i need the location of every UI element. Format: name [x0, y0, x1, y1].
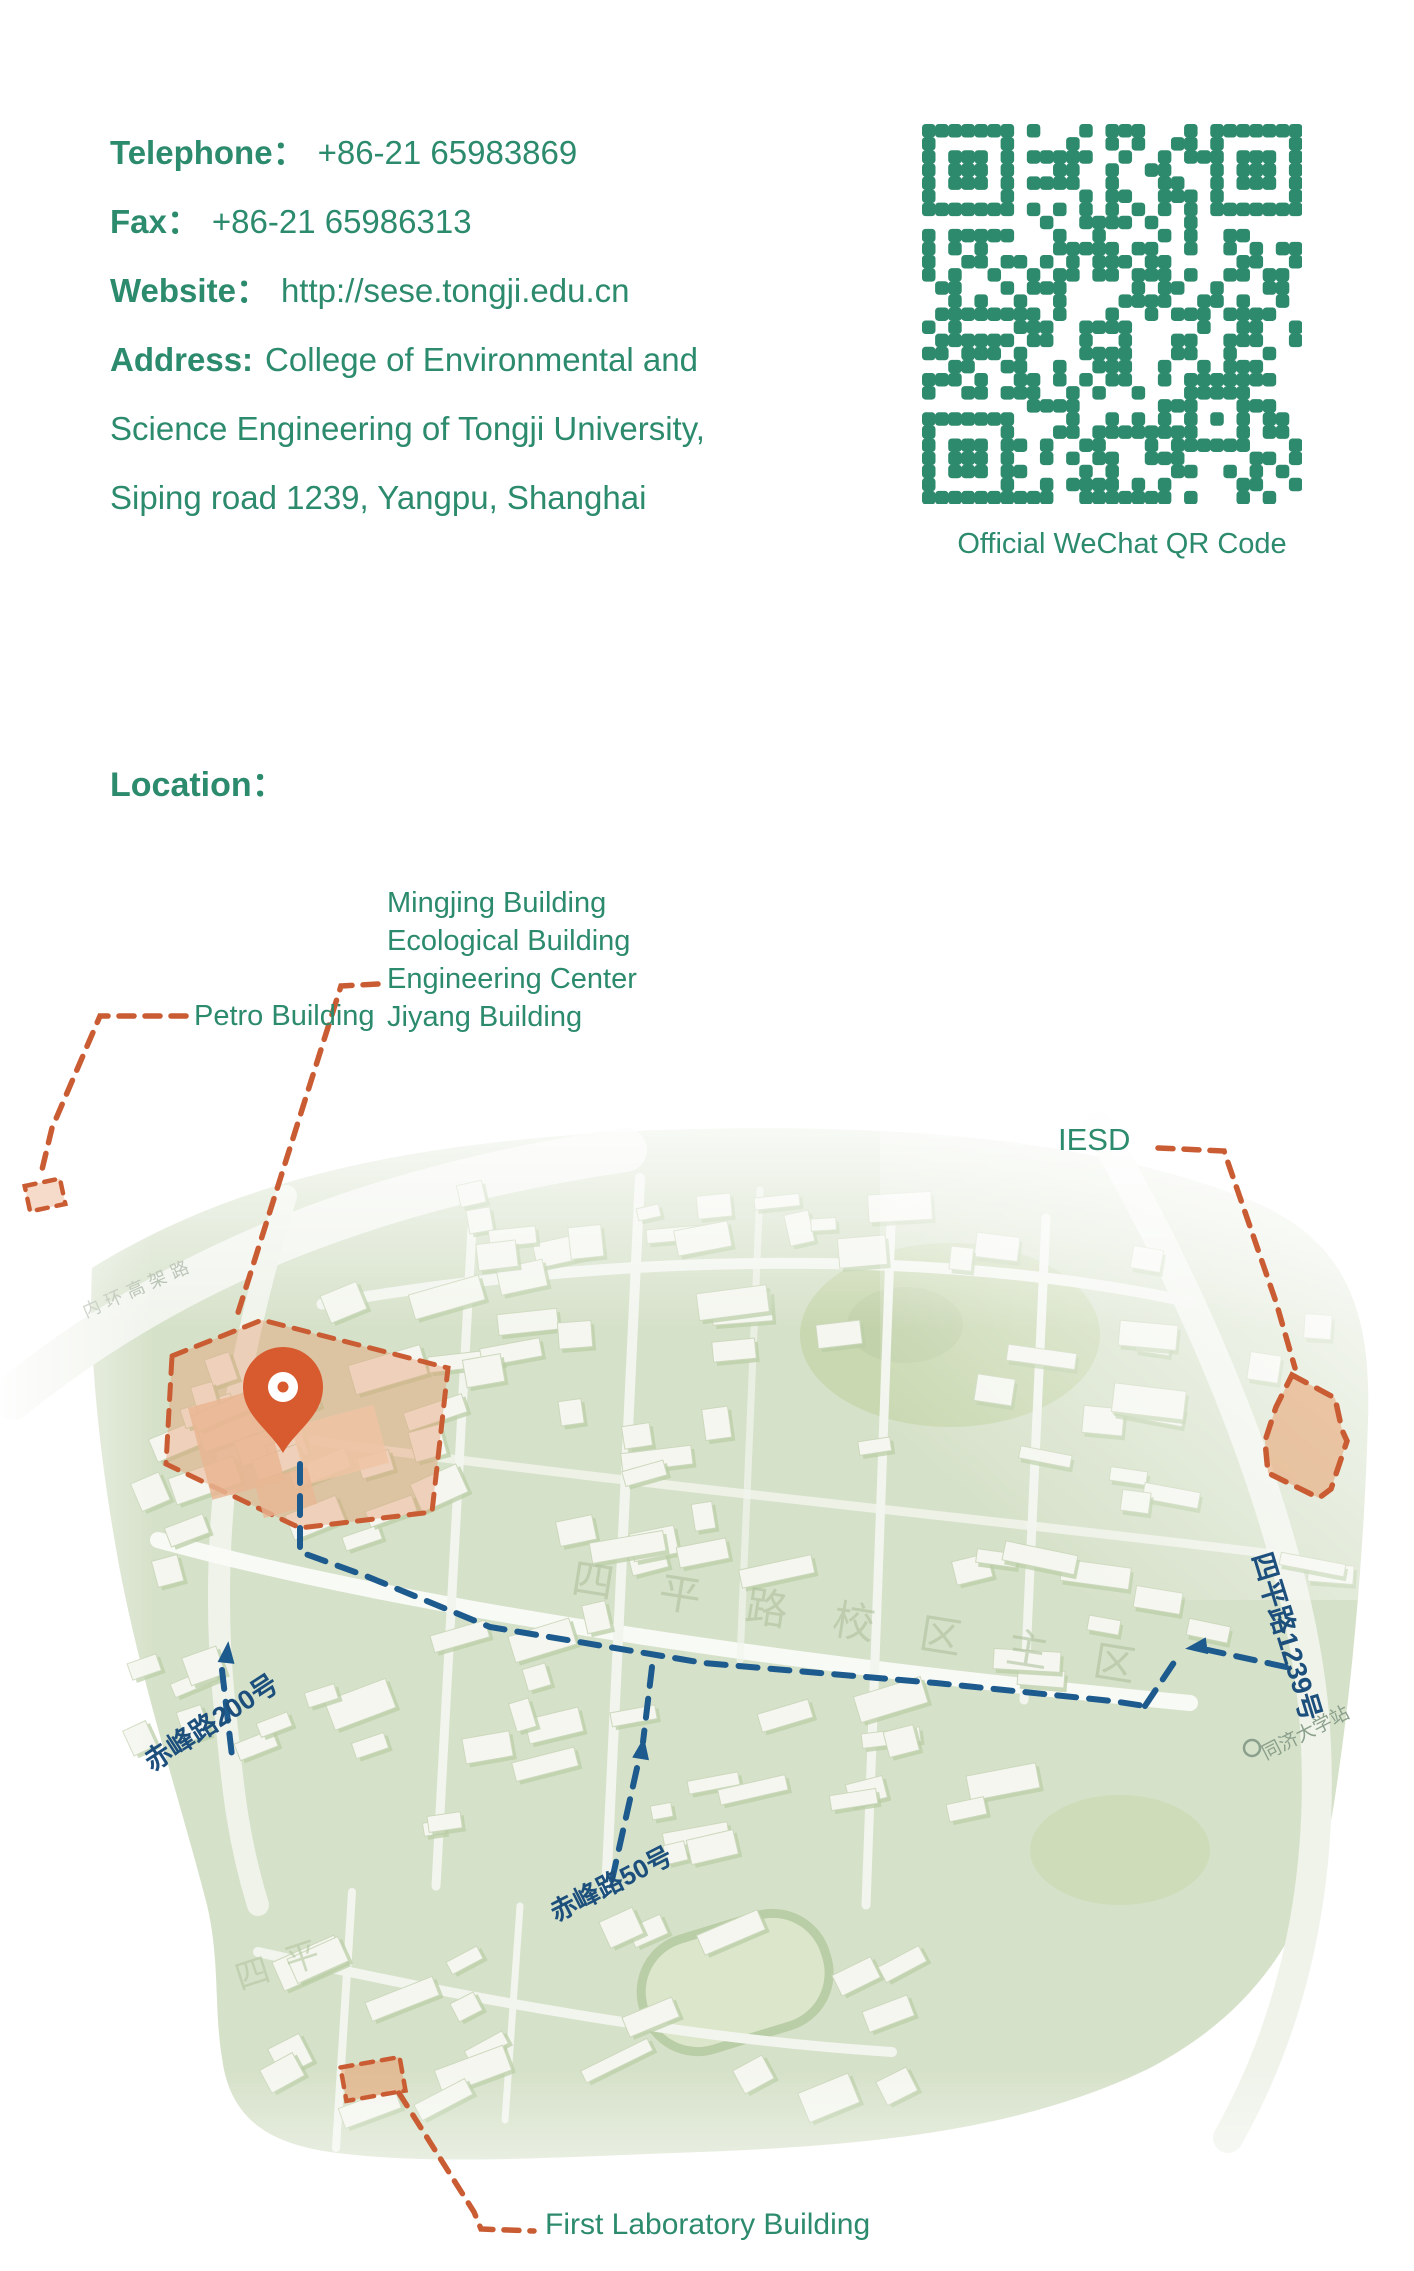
qr-module — [948, 203, 962, 217]
qr-module — [988, 412, 1002, 426]
qr-module — [1001, 203, 1015, 217]
qr-module — [961, 163, 975, 177]
qr-module — [961, 452, 975, 466]
qr-module — [961, 412, 975, 426]
qr-module — [948, 373, 962, 387]
qr-module — [1236, 425, 1250, 439]
qr-module — [1132, 203, 1146, 217]
qr-module — [1040, 150, 1054, 164]
qr-module — [1092, 360, 1106, 374]
qr-module — [1223, 307, 1237, 321]
qr-module — [1289, 255, 1302, 269]
qr-module — [974, 255, 988, 269]
qr-module — [1276, 294, 1290, 308]
qr-module — [1250, 465, 1264, 479]
qr-module — [1092, 268, 1106, 282]
qr-module — [1158, 399, 1172, 413]
qr-module — [1145, 307, 1159, 321]
qr-module — [1250, 176, 1264, 190]
qr-module — [1158, 203, 1172, 217]
qr-module — [1289, 190, 1302, 204]
qr-module — [1027, 150, 1041, 164]
qr-module — [1236, 163, 1250, 177]
qr-module — [948, 334, 962, 348]
qr-module — [974, 386, 988, 400]
qr-module — [974, 242, 988, 256]
qr-module — [1250, 334, 1264, 348]
qr-module — [948, 268, 962, 282]
qr-module — [1132, 268, 1146, 282]
qr-module — [1105, 203, 1119, 217]
qr-module — [961, 255, 975, 269]
qr-module — [1158, 425, 1172, 439]
qr-module — [1197, 360, 1211, 374]
qr-module — [1079, 373, 1093, 387]
qr-module — [1092, 216, 1106, 230]
qr-module — [961, 150, 975, 164]
qr-module — [1014, 347, 1028, 361]
qr-module — [1119, 334, 1133, 348]
first-lab-building-area — [341, 2057, 406, 2101]
map-building — [702, 1406, 732, 1441]
qr-module — [1210, 203, 1224, 217]
qr-module — [922, 203, 936, 217]
qr-module — [1014, 373, 1028, 387]
qr-module — [1236, 294, 1250, 308]
website-line: Website：http://sese.tongji.edu.cn — [110, 256, 705, 325]
qr-module — [1236, 203, 1250, 217]
qr-module — [1210, 438, 1224, 452]
brochure-page: 四平路校区主区 四平 内环高架路 — [0, 0, 1414, 2271]
qr-module — [1040, 478, 1054, 492]
address-value-1: College of Environmental and — [265, 341, 698, 378]
qr-module — [1040, 176, 1054, 190]
qr-module — [1132, 281, 1146, 295]
qr-module — [1236, 268, 1250, 282]
qr-module — [1027, 373, 1041, 387]
qr-module — [1040, 255, 1054, 269]
qr-module — [1210, 294, 1224, 308]
qr-module — [1223, 347, 1237, 361]
qr-module — [1276, 425, 1290, 439]
qr-module — [1014, 255, 1028, 269]
qr-module — [922, 190, 936, 204]
qr-module — [1014, 386, 1028, 400]
qr-module — [1119, 425, 1133, 439]
qr-module — [961, 203, 975, 217]
qr-module — [922, 373, 936, 387]
qr-module — [1184, 190, 1198, 204]
qr-module — [1289, 163, 1302, 177]
qr-module — [1079, 321, 1093, 335]
qr-module — [948, 163, 962, 177]
qr-module — [961, 360, 975, 374]
contact-block: Telephone：+86-21 65983869 Fax：+86-21 659… — [110, 118, 705, 532]
qr-module — [1066, 452, 1080, 466]
qr-module — [1158, 255, 1172, 269]
fax-value: +86-21 65986313 — [212, 203, 472, 240]
qr-module — [935, 281, 949, 295]
address-label: Address: — [110, 341, 253, 378]
qr-module — [1105, 425, 1119, 439]
qr-module — [1276, 281, 1290, 295]
qr-module — [1145, 452, 1159, 466]
qr-module — [1289, 478, 1302, 492]
qr-module — [1092, 321, 1106, 335]
qr-module — [1197, 321, 1211, 335]
qr-module — [1053, 425, 1067, 439]
qr-module — [1119, 150, 1133, 164]
qr-module — [1223, 268, 1237, 282]
qr-module — [1171, 137, 1185, 151]
qr-module — [961, 229, 975, 243]
qr-module — [1276, 412, 1290, 426]
qr-module — [1236, 491, 1250, 504]
qr-module — [1145, 163, 1159, 177]
qr-module — [1250, 321, 1264, 335]
qr-module — [1171, 281, 1185, 295]
qr-module — [1105, 124, 1119, 138]
qr-module — [1250, 163, 1264, 177]
qr-module — [1145, 294, 1159, 308]
location-heading: Location： — [110, 757, 286, 806]
qr-module — [1223, 373, 1237, 387]
qr-module — [1092, 438, 1106, 452]
qr-module — [1053, 307, 1067, 321]
qr-module — [935, 307, 949, 321]
qr-module — [1184, 242, 1198, 256]
qr-module — [988, 491, 1002, 504]
qr-module — [1171, 190, 1185, 204]
qr-module — [1040, 491, 1054, 504]
qr-module — [1236, 176, 1250, 190]
qr-module — [1263, 399, 1277, 413]
qr-module — [1236, 321, 1250, 335]
qr-module — [1184, 465, 1198, 479]
qr-module — [948, 294, 962, 308]
qr-module — [961, 465, 975, 479]
qr-module — [1132, 124, 1146, 138]
qr-module — [1105, 176, 1119, 190]
qr-module — [922, 465, 936, 479]
qr-module — [1223, 229, 1237, 243]
qr-module — [1263, 163, 1277, 177]
qr-module — [948, 438, 962, 452]
qr-module — [1263, 412, 1277, 426]
qr-module — [1105, 242, 1119, 256]
qr-module — [922, 242, 936, 256]
map-label-jiyang: Jiyang Building — [387, 998, 637, 1036]
qr-module — [1119, 373, 1133, 387]
qr-module — [1145, 438, 1159, 452]
qr-module — [1066, 412, 1080, 426]
qr-module — [1079, 203, 1093, 217]
qr-module — [1184, 307, 1198, 321]
qr-module — [1001, 386, 1015, 400]
qr-module — [1289, 242, 1302, 256]
map-label-iesd: IESD — [1058, 1122, 1130, 1158]
qr-module — [922, 347, 936, 361]
qr-module — [988, 268, 1002, 282]
fax-line: Fax：+86-21 65986313 — [110, 187, 705, 256]
qr-module — [974, 347, 988, 361]
qr-module — [1210, 124, 1224, 138]
qr-module — [1250, 242, 1264, 256]
qr-module — [1263, 491, 1277, 504]
qr-module — [1105, 347, 1119, 361]
qr-module — [1119, 216, 1133, 230]
qr-module — [1145, 268, 1159, 282]
qr-module — [1079, 478, 1093, 492]
qr-module — [1197, 150, 1211, 164]
qr-module — [1171, 347, 1185, 361]
qr-module — [1092, 347, 1106, 361]
qr-module — [1171, 438, 1185, 452]
qr-module — [1184, 334, 1198, 348]
qr-module — [922, 150, 936, 164]
qr-module — [1001, 465, 1015, 479]
qr-module — [1132, 294, 1146, 308]
qr-module — [1158, 478, 1172, 492]
qr-module — [1119, 294, 1133, 308]
qr-module — [1001, 478, 1015, 492]
qr-module — [1119, 360, 1133, 374]
qr-module — [948, 124, 962, 138]
qr-module — [948, 452, 962, 466]
qr-module — [1184, 347, 1198, 361]
qr-module — [1105, 137, 1119, 151]
qr-module — [1223, 124, 1237, 138]
qr-module — [1027, 268, 1041, 282]
qr-module — [961, 124, 975, 138]
qr-module — [1210, 137, 1224, 151]
qr-module — [1263, 373, 1277, 387]
qr-module — [1289, 321, 1302, 335]
qr-module — [935, 203, 949, 217]
petro-leader-box — [25, 1179, 66, 1212]
qr-module — [1263, 452, 1277, 466]
qr-module — [961, 347, 975, 361]
qr-module — [1250, 124, 1264, 138]
qr-module — [1263, 176, 1277, 190]
qr-module — [1092, 425, 1106, 439]
qr-module — [974, 452, 988, 466]
qr-module — [1001, 425, 1015, 439]
qr-module — [1210, 190, 1224, 204]
qr-module — [922, 268, 936, 282]
qr-module — [1184, 268, 1198, 282]
qr-module — [1236, 360, 1250, 374]
qr-module — [1105, 255, 1119, 269]
qr-module — [1158, 294, 1172, 308]
qr-module — [1158, 268, 1172, 282]
qr-module — [1092, 229, 1106, 243]
qr-module — [1171, 307, 1185, 321]
qr-module — [922, 491, 936, 504]
qr-module — [974, 334, 988, 348]
qr-module — [948, 465, 962, 479]
qr-module — [1119, 190, 1133, 204]
qr-module — [1250, 478, 1264, 492]
qr-module — [1066, 255, 1080, 269]
qr-module — [948, 321, 962, 335]
qr-module — [1053, 268, 1067, 282]
qr-module — [974, 373, 988, 387]
qr-module — [935, 491, 949, 504]
qr-module — [974, 124, 988, 138]
qr-module — [1223, 242, 1237, 256]
qr-module — [974, 229, 988, 243]
qr-module — [1184, 386, 1198, 400]
qr-module — [988, 347, 1002, 361]
qr-module — [948, 412, 962, 426]
qr-module — [1263, 425, 1277, 439]
qr-module — [922, 321, 936, 335]
qr-module — [1263, 124, 1277, 138]
qr-module — [1276, 242, 1290, 256]
qr-module — [1250, 399, 1264, 413]
qr-module — [1066, 399, 1080, 413]
qr-module — [1289, 452, 1302, 466]
qr-module — [1105, 268, 1119, 282]
qr-module — [1132, 425, 1146, 439]
qr-module — [974, 203, 988, 217]
map-label-first-laboratory: First Laboratory Building — [545, 2208, 870, 2242]
qr-module — [1119, 347, 1133, 361]
qr-module — [948, 307, 962, 321]
qr-module — [1197, 373, 1211, 387]
qr-module — [1014, 321, 1028, 335]
qr-module — [974, 294, 988, 308]
qr-module — [1263, 307, 1277, 321]
qr-module — [1184, 399, 1198, 413]
qr-module — [961, 334, 975, 348]
qr-module — [1132, 137, 1146, 151]
qr-module — [974, 412, 988, 426]
qr-module — [1263, 268, 1277, 282]
qr-module — [1001, 163, 1015, 177]
qr-module — [1040, 216, 1054, 230]
map-building — [691, 1501, 716, 1531]
qr-module — [948, 281, 962, 295]
qr-module — [935, 334, 949, 348]
map-base: 四平路校区主区 四平 内环高架路 — [0, 1080, 1414, 2271]
qr-module — [1184, 203, 1198, 217]
qr-module — [974, 150, 988, 164]
qr-module — [1158, 360, 1172, 374]
qr-module — [1014, 438, 1028, 452]
qr-module — [922, 255, 936, 269]
qr-module — [1092, 491, 1106, 504]
qr-module — [988, 307, 1002, 321]
qr-module — [1197, 307, 1211, 321]
qr-module — [1105, 452, 1119, 466]
qr-module — [1040, 281, 1054, 295]
qr-module — [948, 176, 962, 190]
qr-module — [1053, 163, 1067, 177]
qr-module — [1105, 321, 1119, 335]
qr-module — [1053, 360, 1067, 374]
qr-module — [1132, 242, 1146, 256]
qr-module — [1289, 124, 1302, 138]
qr-module — [1079, 242, 1093, 256]
qr-module — [1276, 124, 1290, 138]
qr-module — [1105, 465, 1119, 479]
qr-module — [1105, 491, 1119, 504]
qr-module — [1184, 491, 1198, 504]
qr-module — [922, 438, 936, 452]
qr-module — [922, 425, 936, 439]
qr-module — [1184, 229, 1198, 243]
qr-module — [1001, 438, 1015, 452]
qr-module — [1053, 203, 1067, 217]
qr-module — [1079, 216, 1093, 230]
qr-module — [1001, 150, 1015, 164]
qr-module — [1119, 124, 1133, 138]
qr-module — [1223, 465, 1237, 479]
qr-module — [1171, 465, 1185, 479]
qr-module — [1040, 452, 1054, 466]
qr-module — [1119, 255, 1133, 269]
qr-module — [1027, 334, 1041, 348]
address-line-2: Science Engineering of Tongji University… — [110, 394, 705, 463]
qr-module — [988, 334, 1002, 348]
qr-module — [1276, 203, 1290, 217]
qr-module — [1079, 491, 1093, 504]
qr-module — [922, 452, 936, 466]
qr-module — [1053, 294, 1067, 308]
qr-module — [1105, 360, 1119, 374]
qr-module — [1092, 242, 1106, 256]
qr-module — [1184, 137, 1198, 151]
qr-module — [1184, 216, 1198, 230]
qr-module — [1027, 307, 1041, 321]
qr-module — [1184, 124, 1198, 138]
qr-module — [1250, 360, 1264, 374]
qr-module — [1263, 281, 1277, 295]
qr-module — [1014, 294, 1028, 308]
qr-module — [1158, 452, 1172, 466]
qr-module — [1158, 412, 1172, 426]
qr-module — [1079, 347, 1093, 361]
qr-module — [1289, 438, 1302, 452]
qr-module — [1250, 150, 1264, 164]
map-building — [558, 1399, 584, 1426]
qr-module — [1250, 307, 1264, 321]
qr-module — [1145, 242, 1159, 256]
map-label-building-list: Mingjing Building Ecological Building En… — [387, 884, 637, 1036]
qr-module — [1014, 360, 1028, 374]
qr-module — [974, 491, 988, 504]
qr-module — [988, 124, 1002, 138]
qr-module — [1040, 321, 1054, 335]
qr-module — [1132, 412, 1146, 426]
qr-module — [1236, 229, 1250, 243]
qr-module — [1236, 307, 1250, 321]
qr-module — [1079, 190, 1093, 204]
qr-module — [1066, 478, 1080, 492]
address-line-3: Siping road 1239, Yangpu, Shanghai — [110, 463, 705, 532]
qr-module — [1027, 399, 1041, 413]
wechat-qr-code — [922, 124, 1302, 504]
map-label-ecological: Ecological Building — [387, 922, 637, 960]
qr-module — [1263, 347, 1277, 361]
qr-module — [1210, 150, 1224, 164]
qr-module — [1119, 321, 1133, 335]
qr-module — [1079, 124, 1093, 138]
qr-module — [948, 491, 962, 504]
qr-module — [922, 386, 936, 400]
